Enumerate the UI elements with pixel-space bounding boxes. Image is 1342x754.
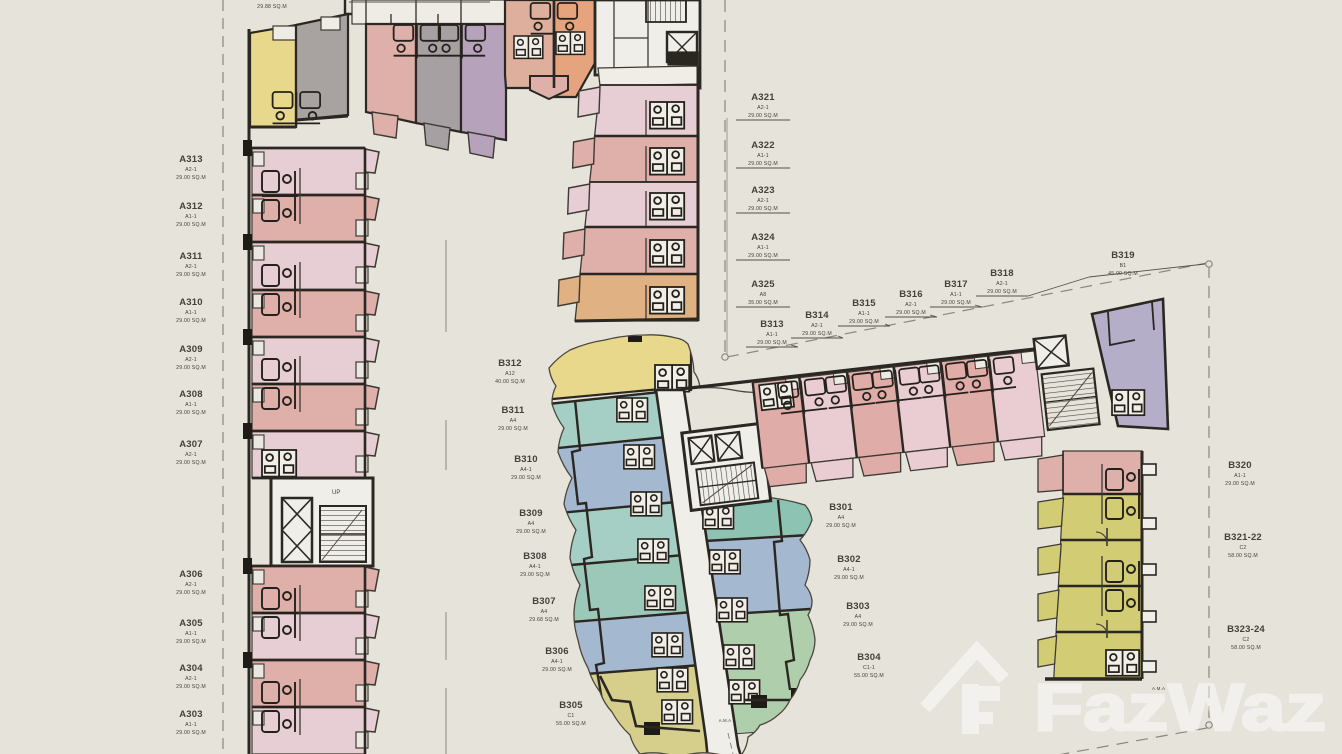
svg-text:29.00 SQ.M: 29.00 SQ.M (176, 175, 206, 181)
svg-text:A2-1: A2-1 (185, 167, 197, 173)
svg-text:A2-1: A2-1 (185, 452, 197, 458)
svg-text:A.M.A: A.M.A (719, 718, 731, 723)
svg-text:A1-1: A1-1 (185, 310, 197, 316)
svg-text:B310: B310 (514, 454, 538, 465)
svg-text:29.00 SQ.M: 29.00 SQ.M (941, 300, 971, 306)
svg-text:B306: B306 (545, 646, 569, 657)
svg-text:29.00 SQ.M: 29.00 SQ.M (748, 113, 778, 119)
svg-text:B303: B303 (846, 601, 870, 612)
svg-text:UP: UP (332, 490, 340, 496)
svg-text:B314: B314 (805, 310, 829, 321)
svg-text:29.00 SQ.M: 29.00 SQ.M (176, 365, 206, 371)
svg-text:A12: A12 (505, 371, 515, 377)
svg-text:A1-1: A1-1 (185, 631, 197, 637)
svg-text:C1: C1 (567, 713, 574, 719)
svg-text:29.88 SQ.M: 29.88 SQ.M (257, 4, 287, 10)
svg-text:A2-1: A2-1 (996, 281, 1008, 287)
svg-text:29.00 SQ.M: 29.00 SQ.M (987, 289, 1017, 295)
svg-text:29.00 SQ.M: 29.00 SQ.M (511, 475, 541, 481)
svg-text:29.00 SQ.M: 29.00 SQ.M (516, 529, 546, 535)
svg-text:29.00 SQ.M: 29.00 SQ.M (176, 639, 206, 645)
svg-text:A4: A4 (541, 609, 548, 615)
svg-text:29.68 SQ.M: 29.68 SQ.M (529, 617, 559, 623)
svg-text:C2: C2 (1239, 545, 1246, 551)
svg-text:A2-1: A2-1 (757, 105, 769, 111)
svg-text:29.00 SQ.M: 29.00 SQ.M (176, 730, 206, 736)
svg-text:29.00 SQ.M: 29.00 SQ.M (176, 460, 206, 466)
svg-text:B323-24: B323-24 (1227, 624, 1265, 635)
svg-text:A1-1: A1-1 (185, 214, 197, 220)
svg-text:A4: A4 (528, 521, 535, 527)
svg-text:A8: A8 (760, 292, 767, 298)
svg-text:B1: B1 (1120, 263, 1127, 269)
svg-text:29.00 SQ.M: 29.00 SQ.M (176, 410, 206, 416)
svg-text:A1-1: A1-1 (185, 402, 197, 408)
svg-text:A2-1: A2-1 (185, 676, 197, 682)
svg-text:B301: B301 (829, 502, 853, 513)
svg-text:A2-1: A2-1 (811, 323, 823, 329)
svg-text:B308: B308 (523, 551, 547, 562)
svg-text:A309: A309 (179, 344, 203, 355)
svg-text:58.00 SQ.M: 58.00 SQ.M (1231, 645, 1261, 651)
svg-text:A308: A308 (179, 389, 203, 400)
svg-text:A322: A322 (751, 140, 775, 151)
svg-text:A4: A4 (855, 614, 862, 620)
svg-text:A1-1: A1-1 (185, 722, 197, 728)
svg-text:29.00 SQ.M: 29.00 SQ.M (843, 622, 873, 628)
svg-text:29.00 SQ.M: 29.00 SQ.M (176, 272, 206, 278)
svg-text:C2: C2 (1242, 637, 1249, 643)
svg-text:A1-1: A1-1 (757, 245, 769, 251)
svg-text:B319: B319 (1111, 250, 1135, 261)
svg-text:C1-1: C1-1 (863, 665, 875, 671)
svg-text:29.00 SQ.M: 29.00 SQ.M (757, 340, 787, 346)
svg-text:A2-1: A2-1 (185, 264, 197, 270)
svg-text:A1-1: A1-1 (1234, 473, 1246, 479)
svg-text:29.00 SQ.M: 29.00 SQ.M (542, 667, 572, 673)
svg-text:B307: B307 (532, 596, 556, 607)
svg-text:55.00 SQ.M: 55.00 SQ.M (854, 673, 884, 679)
svg-text:B317: B317 (944, 279, 968, 290)
svg-text:A312: A312 (179, 201, 203, 212)
svg-text:A303: A303 (179, 709, 203, 720)
svg-text:B305: B305 (559, 700, 583, 711)
svg-text:29.00 SQ.M: 29.00 SQ.M (826, 523, 856, 529)
svg-text:A4-1: A4-1 (843, 567, 855, 573)
svg-text:B315: B315 (852, 298, 876, 309)
svg-text:A304: A304 (179, 663, 203, 674)
svg-text:A323: A323 (751, 185, 775, 196)
svg-text:A1-1: A1-1 (757, 153, 769, 159)
svg-text:A305: A305 (179, 618, 203, 629)
svg-text:29.00 SQ.M: 29.00 SQ.M (748, 206, 778, 212)
svg-text:29.00 SQ.M: 29.00 SQ.M (896, 310, 926, 316)
svg-text:A2-1: A2-1 (757, 198, 769, 204)
svg-text:A2-1: A2-1 (905, 302, 917, 308)
svg-text:B318: B318 (990, 268, 1014, 279)
svg-text:A2-1: A2-1 (185, 357, 197, 363)
svg-text:29.00 SQ.M: 29.00 SQ.M (498, 426, 528, 432)
svg-text:B316: B316 (899, 289, 923, 300)
svg-text:B302: B302 (837, 554, 861, 565)
svg-text:55.00 SQ.M: 55.00 SQ.M (556, 721, 586, 727)
svg-text:B311: B311 (502, 405, 526, 416)
svg-text:B312: B312 (498, 358, 522, 369)
svg-text:29.00 SQ.M: 29.00 SQ.M (176, 590, 206, 596)
svg-text:B321-22: B321-22 (1224, 532, 1262, 543)
svg-text:A311: A311 (180, 251, 204, 262)
svg-text:B309: B309 (519, 508, 543, 519)
svg-text:A1-1: A1-1 (858, 311, 870, 317)
svg-text:29.00 SQ.M: 29.00 SQ.M (802, 331, 832, 337)
svg-text:A4-1: A4-1 (529, 564, 541, 570)
svg-text:29.00 SQ.M: 29.00 SQ.M (520, 572, 550, 578)
svg-text:FazWaz: FazWaz (1034, 670, 1326, 744)
svg-text:29.00 SQ.M: 29.00 SQ.M (849, 319, 879, 325)
svg-text:29.00 SQ.M: 29.00 SQ.M (1225, 481, 1255, 487)
svg-text:29.00 SQ.M: 29.00 SQ.M (834, 575, 864, 581)
svg-text:29.00 SQ.M: 29.00 SQ.M (176, 684, 206, 690)
svg-text:40.00 SQ.M: 40.00 SQ.M (495, 379, 525, 385)
svg-text:29.00 SQ.M: 29.00 SQ.M (176, 222, 206, 228)
svg-text:B304: B304 (857, 652, 881, 663)
svg-text:A4: A4 (510, 418, 517, 424)
svg-text:A306: A306 (179, 569, 203, 580)
svg-text:A1-1: A1-1 (766, 332, 778, 338)
svg-text:B313: B313 (760, 319, 784, 330)
svg-text:A1-1: A1-1 (950, 292, 962, 298)
svg-text:58.00 SQ.M: 58.00 SQ.M (1228, 553, 1258, 559)
svg-text:A321: A321 (751, 92, 775, 103)
svg-text:A313: A313 (179, 154, 203, 165)
svg-text:A325: A325 (751, 279, 775, 290)
svg-text:A2-1: A2-1 (185, 582, 197, 588)
svg-text:A4: A4 (838, 515, 845, 521)
svg-text:A4-1: A4-1 (520, 467, 532, 473)
svg-text:A4-1: A4-1 (551, 659, 563, 665)
svg-text:35.00 SQ.M: 35.00 SQ.M (748, 300, 778, 306)
svg-text:B320: B320 (1228, 460, 1252, 471)
svg-text:A310: A310 (179, 297, 203, 308)
svg-text:29.00 SQ.M: 29.00 SQ.M (748, 253, 778, 259)
svg-text:A324: A324 (751, 232, 775, 243)
svg-text:29.00 SQ.M: 29.00 SQ.M (748, 161, 778, 167)
svg-text:29.00 SQ.M: 29.00 SQ.M (176, 318, 206, 324)
svg-text:A307: A307 (179, 439, 203, 450)
